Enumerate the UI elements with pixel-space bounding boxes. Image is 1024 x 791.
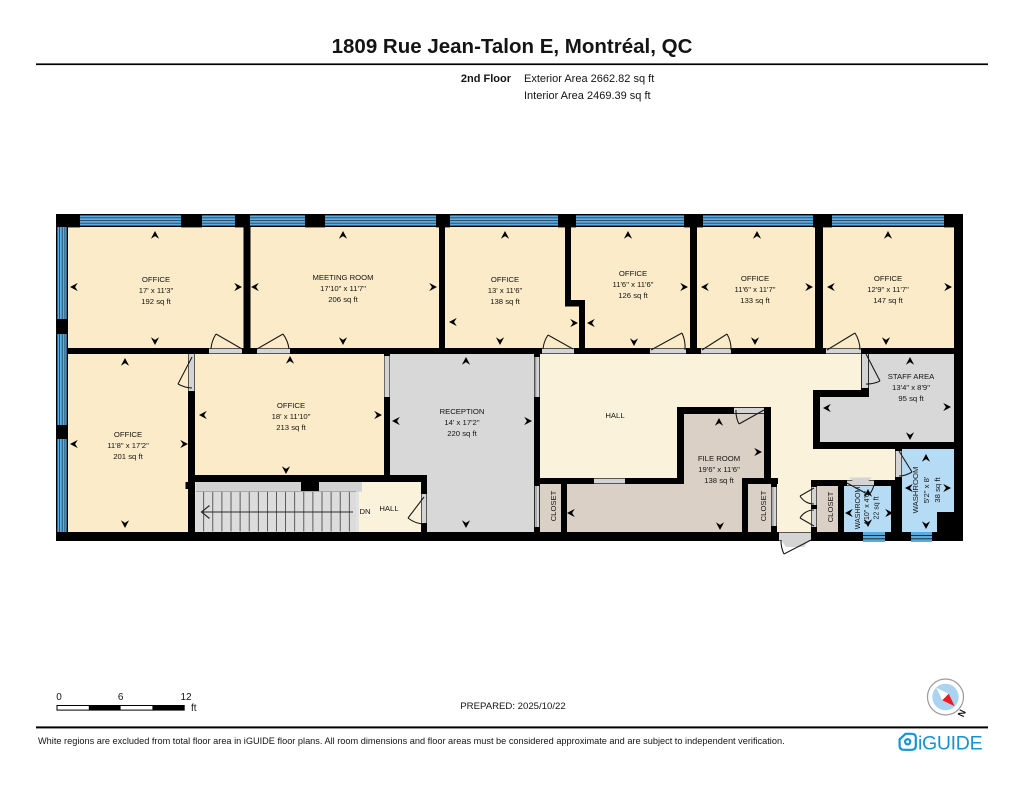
svg-text:12: 12	[180, 692, 192, 703]
svg-text:OFFICE: OFFICE	[741, 274, 769, 283]
svg-text:PREPARED: 2025/10/22: PREPARED: 2025/10/22	[460, 701, 565, 712]
svg-text:OFFICE: OFFICE	[142, 275, 170, 284]
svg-text:17'10" x 11'7": 17'10" x 11'7"	[320, 284, 366, 293]
svg-text:White regions are excluded fro: White regions are excluded from total fl…	[38, 736, 785, 746]
svg-text:13'4" x 8'9": 13'4" x 8'9"	[892, 383, 930, 392]
svg-text:HALL: HALL	[379, 504, 399, 513]
svg-text:WASHROOM: WASHROOM	[911, 467, 920, 514]
svg-text:18' x 11'10": 18' x 11'10"	[272, 412, 311, 421]
svg-text:133 sq ft: 133 sq ft	[740, 296, 770, 305]
svg-text:FILE ROOM: FILE ROOM	[698, 454, 740, 463]
svg-text:220 sq ft: 220 sq ft	[447, 429, 477, 438]
svg-text:0: 0	[56, 692, 62, 703]
svg-text:4'10" x 4'6": 4'10" x 4'6"	[864, 490, 871, 525]
svg-text:Interior Area 2469.39 sq ft: Interior Area 2469.39 sq ft	[524, 90, 651, 102]
svg-text:Exterior Area 2662.82 sq ft: Exterior Area 2662.82 sq ft	[524, 73, 654, 85]
svg-text:OFFICE: OFFICE	[277, 401, 305, 410]
svg-text:19'6" x 11'6": 19'6" x 11'6"	[698, 465, 740, 474]
svg-text:138 sq ft: 138 sq ft	[490, 297, 520, 306]
svg-text:CLOSET: CLOSET	[826, 491, 835, 522]
svg-text:ft: ft	[191, 703, 197, 714]
svg-text:HALL: HALL	[605, 411, 625, 420]
svg-text:RECEPTION: RECEPTION	[440, 407, 485, 416]
svg-text:38 sq ft: 38 sq ft	[933, 477, 942, 503]
svg-text:MEETING ROOM: MEETING ROOM	[312, 273, 373, 282]
svg-text:192 sq ft: 192 sq ft	[141, 297, 171, 306]
svg-text:WASHROOM: WASHROOM	[855, 487, 862, 530]
svg-text:138 sq ft: 138 sq ft	[704, 476, 734, 485]
svg-text:STAFF AREA: STAFF AREA	[888, 372, 935, 381]
svg-text:OFFICE: OFFICE	[491, 275, 519, 284]
svg-text:22 sq ft: 22 sq ft	[874, 496, 881, 519]
svg-text:11'6" x 11'7": 11'6" x 11'7"	[734, 285, 775, 294]
svg-text:6: 6	[118, 692, 124, 703]
svg-text:OFFICE: OFFICE	[114, 430, 142, 439]
svg-text:5'2" x 8': 5'2" x 8'	[922, 476, 931, 503]
svg-text:CLOSET: CLOSET	[549, 490, 558, 521]
svg-text:OFFICE: OFFICE	[619, 269, 647, 278]
svg-text:11'6" x 11'6": 11'6" x 11'6"	[612, 280, 653, 289]
svg-text:DN: DN	[359, 507, 370, 516]
svg-text:14' x 17'2": 14' x 17'2"	[444, 418, 479, 427]
svg-text:2nd Floor: 2nd Floor	[461, 73, 512, 85]
svg-text:95 sq ft: 95 sq ft	[898, 394, 924, 403]
svg-text:213 sq ft: 213 sq ft	[276, 423, 306, 432]
svg-text:11'8" x 17'2": 11'8" x 17'2"	[107, 441, 149, 450]
svg-text:CLOSET: CLOSET	[759, 490, 768, 521]
svg-text:OFFICE: OFFICE	[874, 274, 902, 283]
svg-text:147 sq ft: 147 sq ft	[873, 296, 903, 305]
svg-text:iGUIDE: iGUIDE	[918, 733, 983, 755]
svg-text:126 sq ft: 126 sq ft	[618, 291, 648, 300]
svg-text:17' x 11'3": 17' x 11'3"	[139, 286, 174, 295]
svg-text:201 sq ft: 201 sq ft	[113, 452, 143, 461]
svg-text:1809 Rue Jean-Talon E, Montréa: 1809 Rue Jean-Talon E, Montréal, QC	[332, 35, 693, 58]
svg-text:206 sq ft: 206 sq ft	[328, 295, 358, 304]
svg-text:13' x 11'6": 13' x 11'6"	[488, 286, 523, 295]
svg-text:12'9" x 11'7": 12'9" x 11'7"	[867, 285, 909, 294]
